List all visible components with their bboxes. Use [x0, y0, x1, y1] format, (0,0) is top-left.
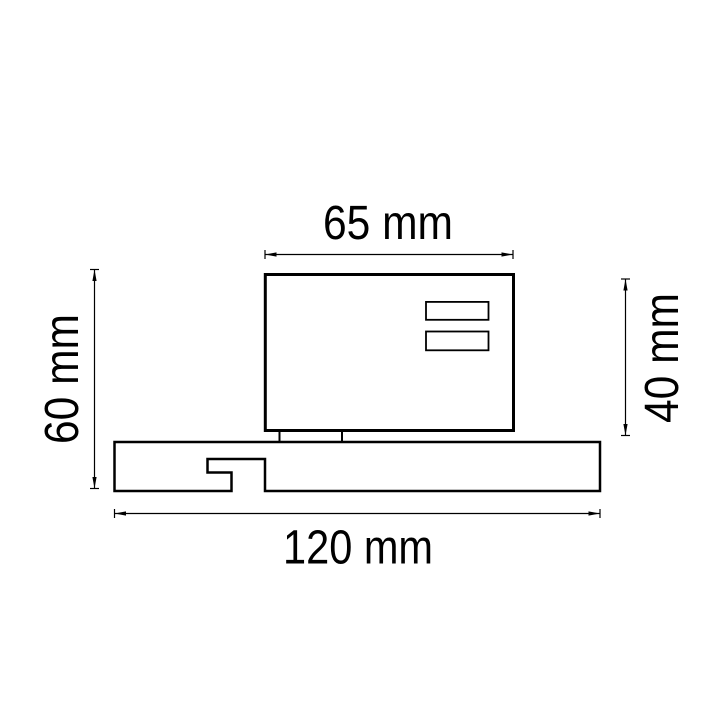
svg-text:65 mm: 65 mm	[323, 197, 453, 250]
svg-text:60 mm: 60 mm	[36, 314, 89, 444]
svg-text:120 mm: 120 mm	[283, 521, 433, 574]
svg-text:40 mm: 40 mm	[636, 293, 689, 423]
